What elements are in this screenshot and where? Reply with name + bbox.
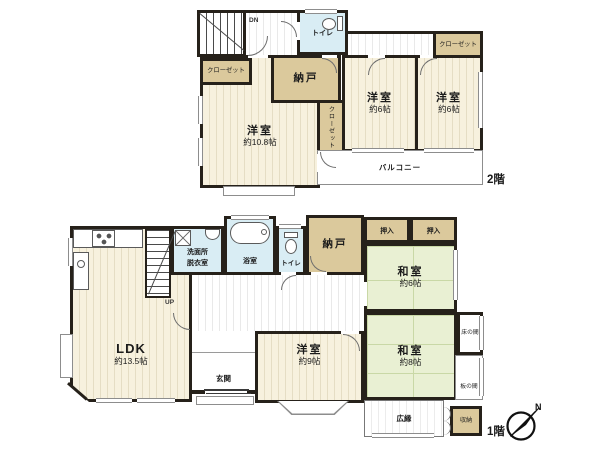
entry-porch <box>196 396 254 405</box>
washroom-label-1: 洗面所 <box>187 247 208 257</box>
door-gap <box>297 22 300 40</box>
toilet-1f-label: トイレ <box>281 257 301 267</box>
washer-icon <box>175 230 191 246</box>
door-gap <box>311 272 327 275</box>
stairs-dn-label: DN <box>249 17 258 24</box>
closet-2f-left: クローゼット <box>200 58 252 85</box>
hiroen-label: 広縁 <box>397 413 412 424</box>
room-japanese-8: 和室 約8帖 <box>364 312 457 400</box>
closet-label: クローゼット <box>207 68 245 74</box>
room9-bay-window-inner <box>279 401 348 414</box>
wall-genkan-bottom-left <box>189 390 205 394</box>
compass-icon: N <box>503 401 545 443</box>
bathroom-label: 浴室 <box>243 256 257 266</box>
window <box>279 224 301 229</box>
room-name: 洋室 <box>297 344 323 356</box>
tokonoma-label: 床の間 <box>461 331 478 337</box>
kitchen-sink-bowl <box>77 260 85 268</box>
room-name: 洋室 <box>367 92 393 104</box>
hall-1f <box>171 275 364 331</box>
window <box>453 250 458 300</box>
room9-bay-window <box>277 401 349 415</box>
wall-2f-righthall-top <box>345 31 437 34</box>
toilet-1f-tank-icon <box>284 232 298 238</box>
hiroen: 広縁 <box>364 400 444 437</box>
room-japanese-6: 和室 約6帖 <box>364 243 457 312</box>
window <box>198 96 203 124</box>
compass-north-label: N <box>535 402 542 412</box>
genkan-step-line <box>192 352 255 353</box>
nando-2f-label: 納戸 <box>294 73 319 85</box>
room-name: 和室 <box>398 266 424 278</box>
genkan-label: 玄関 <box>216 373 231 384</box>
room-size: 約10.8帖 <box>243 138 277 147</box>
room-size: 約8帖 <box>400 358 422 367</box>
stairs-1f <box>145 228 171 298</box>
door-gap <box>420 55 433 58</box>
closet-label: クローゼット <box>439 42 477 48</box>
shuno-label: 収納 <box>460 418 472 424</box>
stove-icon <box>92 230 115 247</box>
toilet-2f-tank-icon <box>337 16 343 31</box>
window <box>198 138 203 166</box>
entry-sliding-door <box>204 389 249 391</box>
balcony: バルコニー <box>317 150 483 185</box>
nando-1f-label: 納戸 <box>323 239 348 251</box>
window <box>479 316 484 350</box>
window <box>305 9 337 14</box>
room-size: 約13.5帖 <box>114 357 148 366</box>
oshiire-left: 押入 <box>364 217 410 243</box>
genkan: 玄関 <box>192 331 255 395</box>
washroom-label-2: 脱衣室 <box>187 258 208 268</box>
oshiire-right: 押入 <box>410 217 457 243</box>
room-name: LDK <box>116 342 146 356</box>
closet-label: クローゼット <box>327 106 336 149</box>
kitchen-sink-icon <box>73 252 89 290</box>
window <box>352 148 404 153</box>
window <box>479 358 484 396</box>
entry-sliding-door <box>206 393 251 395</box>
room-name: 洋室 <box>436 92 462 104</box>
itanoma-label: 板の間 <box>460 385 477 391</box>
door-gap <box>364 282 367 306</box>
window <box>478 72 483 128</box>
bathtub-drain <box>261 229 267 235</box>
shuno: 収納 <box>450 406 482 436</box>
wall-2f-hall-top <box>243 10 300 13</box>
bay-window-2f <box>223 186 295 196</box>
stairs-up-label: UP <box>165 299 174 306</box>
window <box>424 148 474 153</box>
toilet-2f-bowl-icon <box>322 18 336 30</box>
floorplan: DN トイレ 洋室 約10.8帖 納戸 クローゼット クローゼット クローゼット… <box>0 0 600 450</box>
compass: N <box>503 401 545 443</box>
room-size: 約9帖 <box>299 357 321 366</box>
room-size: 約6帖 <box>369 105 391 114</box>
window <box>96 398 132 403</box>
oshiire-label: 押入 <box>427 225 441 235</box>
hall-2f-right <box>345 31 435 57</box>
toilet-1f-bowl-icon <box>285 239 297 254</box>
room-size: 約6帖 <box>400 279 422 288</box>
room-name: 和室 <box>398 345 424 357</box>
window <box>68 238 73 266</box>
oshiire-label: 押入 <box>380 225 394 235</box>
ldk-bay-window <box>60 334 73 378</box>
room-size: 約6帖 <box>438 105 460 114</box>
closet-2f-middle: クローゼット <box>317 100 345 156</box>
window <box>137 398 175 403</box>
door-gap <box>317 154 320 172</box>
window <box>231 215 269 220</box>
floor2-label: 2階 <box>487 171 505 187</box>
balcony-label: バルコニー <box>379 162 421 173</box>
room-name: 洋室 <box>247 125 273 137</box>
window <box>372 433 434 438</box>
